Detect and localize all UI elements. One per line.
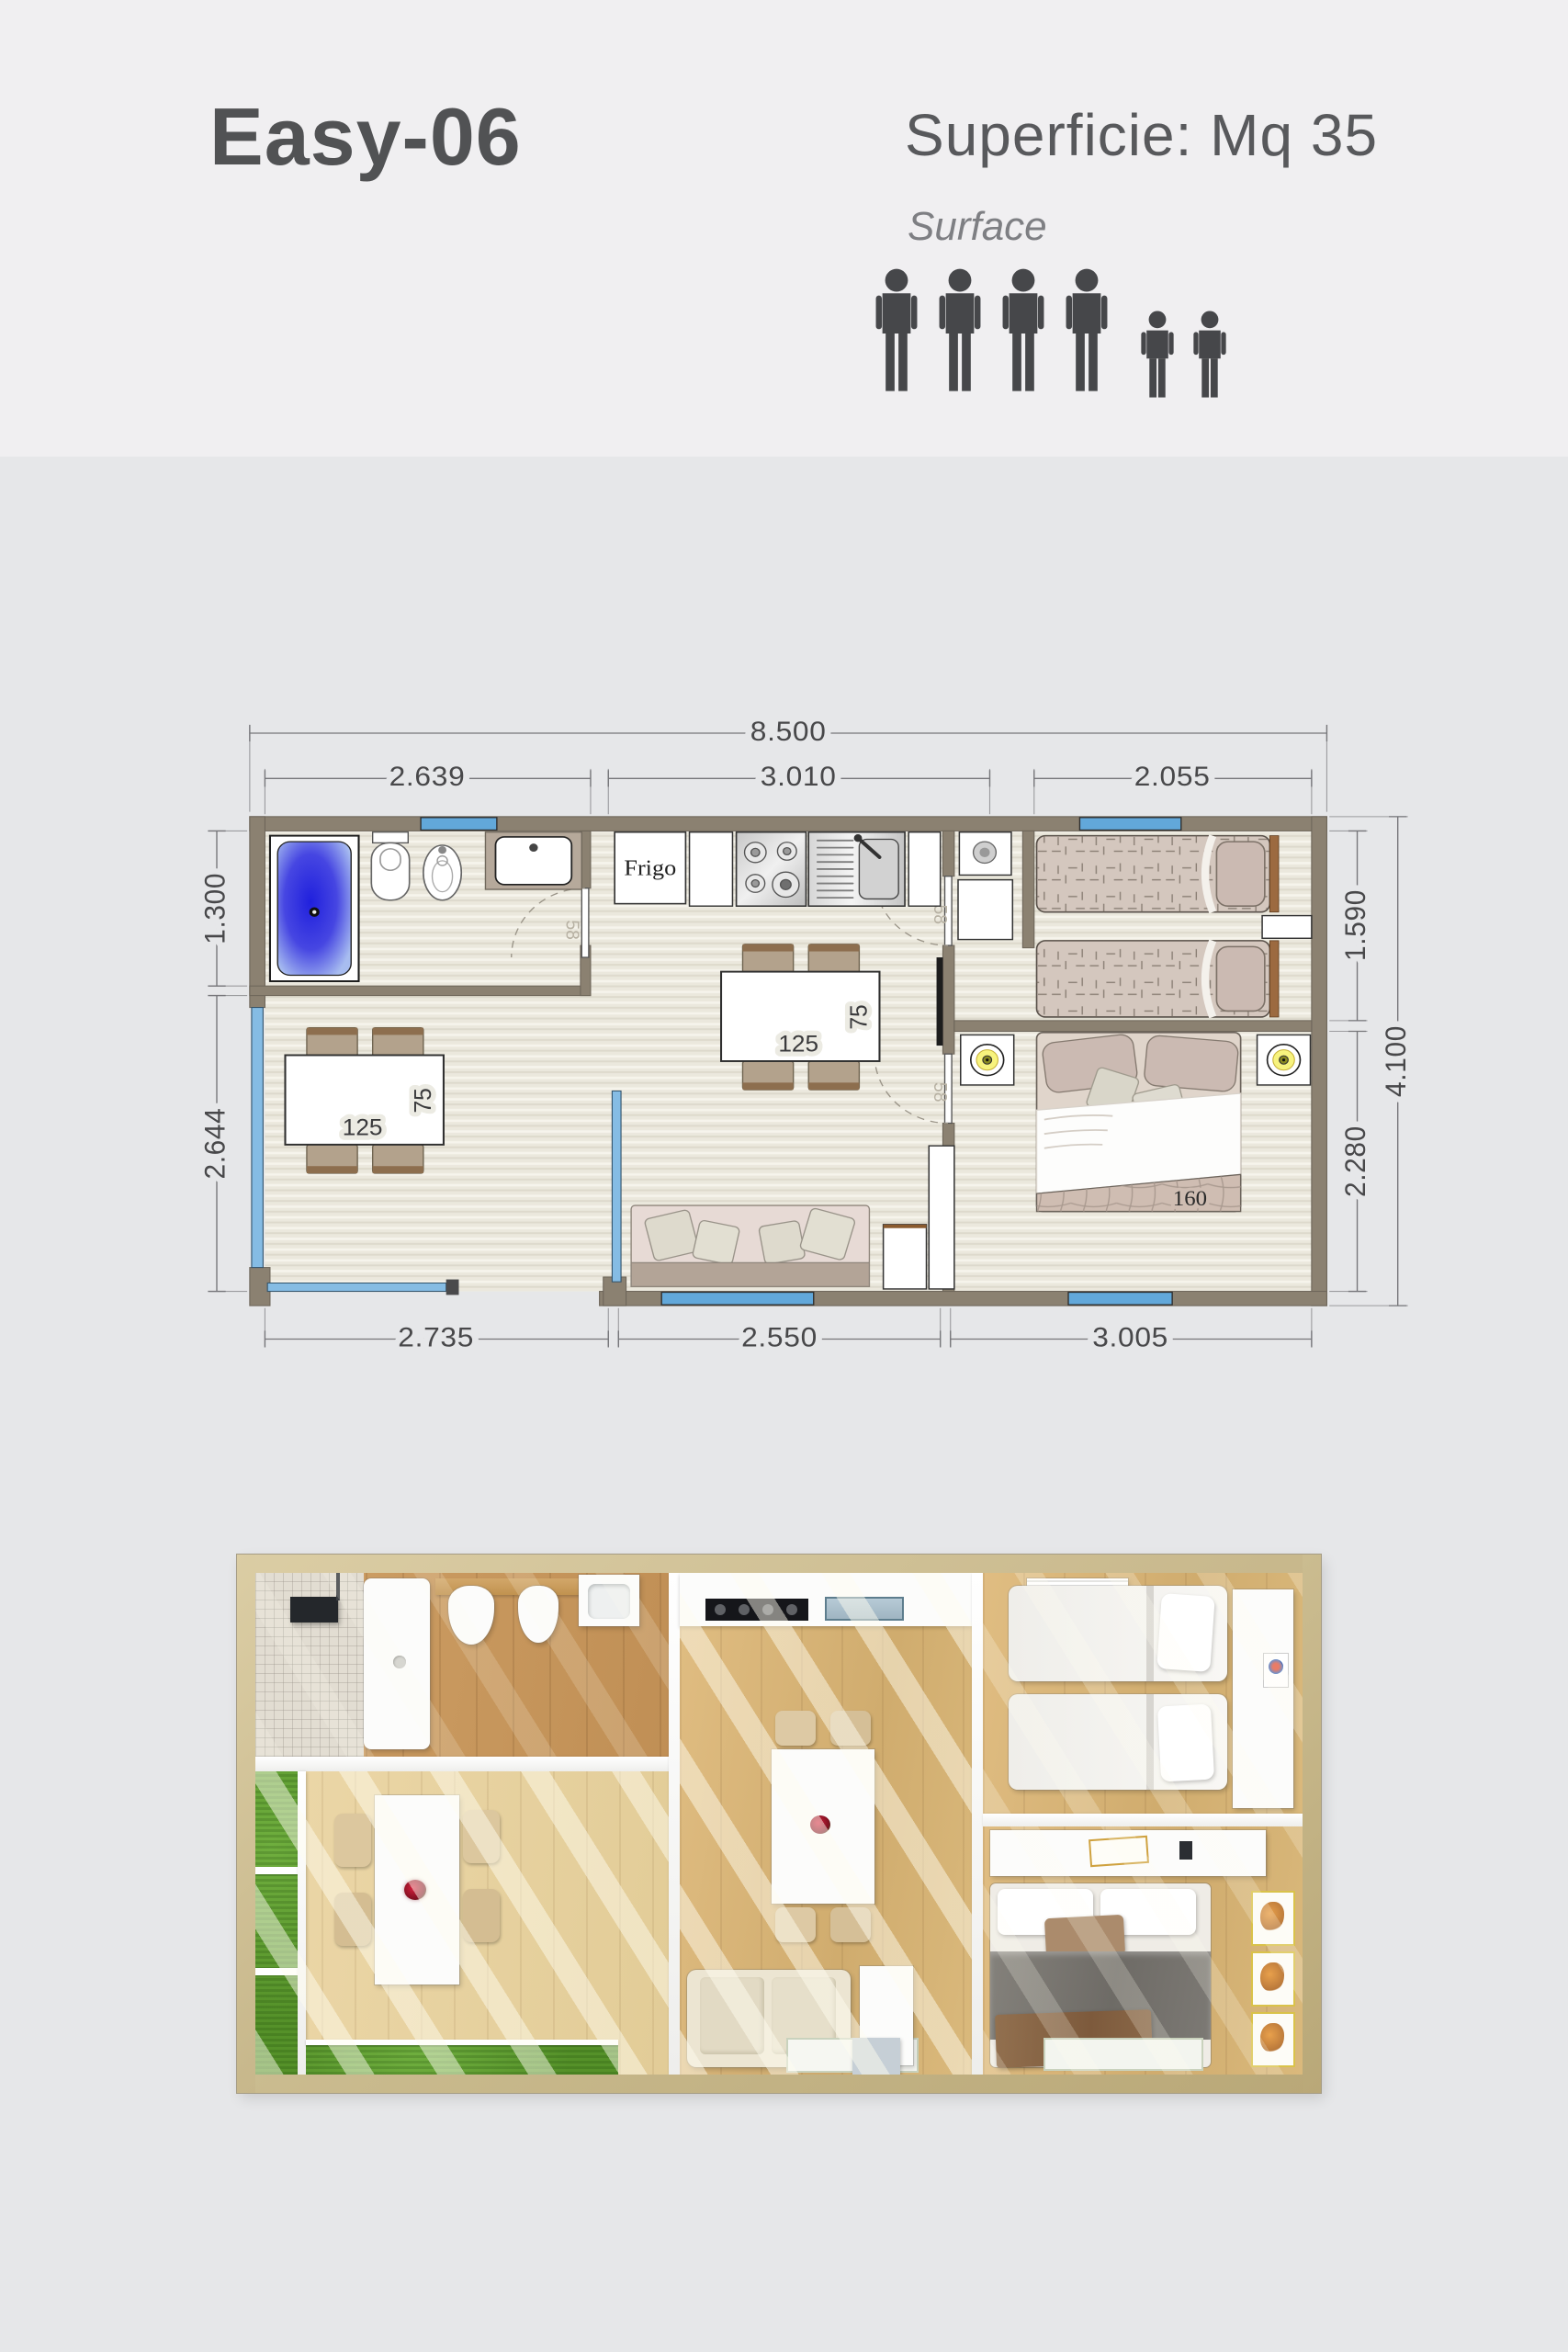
toilet	[371, 832, 409, 900]
render-chair	[463, 1810, 500, 1863]
bed-width-label: 160	[1173, 1188, 1207, 1211]
dim-total-depth: 4.100	[1379, 1025, 1412, 1097]
terrace-glass-left	[252, 1008, 263, 1268]
render-picture-frame	[1253, 1893, 1293, 1944]
dim-living-width: 2.550	[741, 1321, 818, 1352]
render-flowers	[404, 1880, 426, 1900]
render-kitchen-sink	[825, 1597, 904, 1621]
terrace-glass-rail	[267, 1283, 446, 1291]
page: { "header": { "model": "Easy-06", "surfa…	[0, 0, 1568, 2352]
render-wall	[983, 1814, 1303, 1826]
render-chair	[830, 1711, 871, 1746]
person-child-icon	[1139, 310, 1176, 399]
wardrobe-tall	[929, 1146, 954, 1289]
render-terrace	[255, 1771, 669, 2075]
bidet	[423, 845, 461, 900]
table-length-label: 125	[343, 1115, 383, 1140]
dim-kitchen-width: 3.010	[761, 761, 837, 792]
render-living-kitchen	[680, 1573, 972, 2075]
double-bed: 160	[1037, 1033, 1241, 1212]
dim-master-width: 3.005	[1092, 1321, 1168, 1352]
dim-total-width: 8.500	[750, 716, 827, 747]
dresser	[884, 1225, 927, 1289]
render-flowers	[810, 1815, 830, 1834]
kitchen-sink	[808, 832, 905, 906]
dim-terrace-width: 2.735	[398, 1321, 474, 1352]
render-picture-frame	[1253, 1953, 1293, 2005]
render-bidet	[518, 1586, 558, 1643]
render-bathroom-wall	[255, 1757, 669, 1771]
render-master-bedroom	[983, 1826, 1303, 2075]
render-garden-bottom	[306, 2043, 618, 2075]
render-chair	[463, 1889, 500, 1942]
kitchen-cabinet	[690, 832, 733, 906]
dim-bathroom-width: 2.639	[389, 761, 466, 792]
render-desk	[990, 1830, 1266, 1876]
header: Easy-06 Superficie: Mq 35 Surface	[0, 0, 1568, 457]
person-adult-icon	[873, 268, 920, 399]
person-child-icon	[1191, 310, 1228, 399]
nightstand-lamp	[1258, 1035, 1311, 1085]
table-depth-label: 75	[410, 1088, 436, 1113]
render-chair	[775, 1907, 816, 1942]
dim-bathroom-depth: 1.300	[198, 873, 231, 944]
surface-label-italian: Superficie: Mq 35	[905, 101, 1378, 169]
render-wall	[972, 1573, 983, 2075]
render-rug	[1045, 2040, 1201, 2069]
render-toilet	[448, 1586, 494, 1645]
single-bed	[1037, 836, 1279, 912]
person-adult-icon	[936, 268, 984, 399]
render-single-bed	[1009, 1694, 1227, 1790]
render-single-bed	[1009, 1586, 1227, 1681]
door-width-label: 58	[930, 1082, 951, 1102]
stove	[737, 832, 807, 906]
render-bathroom	[255, 1573, 669, 1757]
render-3d-view	[237, 1555, 1321, 2093]
fridge: Frigo	[615, 832, 685, 904]
render-chair	[775, 1711, 816, 1746]
kitchen-fixtures: Frigo	[615, 832, 941, 906]
kitchen-cabinet	[908, 832, 940, 906]
render-chair	[334, 1893, 371, 1946]
floor-plan: 58 58 58	[180, 709, 1416, 1389]
render-cooktop	[705, 1599, 808, 1621]
door-width-label: 58	[562, 920, 583, 940]
dim-master-depth: 2.280	[1338, 1125, 1371, 1197]
render-wardrobe	[1233, 1589, 1293, 1808]
render-interior	[255, 1573, 1303, 2075]
dim-terrace-depth: 2.644	[198, 1108, 231, 1180]
terrace-glass-partition	[612, 1091, 621, 1282]
render-wall-art	[1264, 1654, 1288, 1687]
person-adult-icon	[1063, 268, 1111, 399]
render-chair	[830, 1907, 871, 1942]
dim-twinroom-depth: 1.590	[1338, 889, 1371, 961]
door-width-label: 58	[930, 904, 951, 924]
single-bed	[1037, 941, 1279, 1017]
model-title: Easy-06	[209, 90, 522, 184]
person-adult-icon	[999, 268, 1047, 399]
fridge-label: Frigo	[624, 854, 676, 880]
bedside-cabinet	[1262, 916, 1312, 939]
rail-end-post	[446, 1280, 459, 1295]
render-wall	[669, 1573, 680, 2075]
occupancy-icons	[873, 268, 1228, 399]
render-step	[852, 2038, 900, 2075]
bathtub	[270, 836, 359, 981]
tv-panel	[937, 957, 943, 1046]
table-depth-label: 75	[846, 1004, 873, 1029]
utility-niche	[958, 832, 1012, 940]
nightstand-lamp	[961, 1035, 1014, 1085]
render-shower-head	[290, 1597, 338, 1623]
dim-twinroom-width: 2.055	[1134, 761, 1211, 792]
render-garden-left	[255, 1771, 298, 2075]
table-length-label: 125	[778, 1032, 818, 1057]
niche-cabinet	[958, 880, 1012, 940]
bathroom-sink	[485, 832, 581, 889]
surface-label-english: Surface	[908, 204, 1047, 250]
render-picture-frame	[1253, 2014, 1293, 2065]
render-twin-bedroom	[983, 1573, 1303, 1814]
render-chair	[334, 1814, 371, 1867]
sofa	[631, 1205, 869, 1286]
